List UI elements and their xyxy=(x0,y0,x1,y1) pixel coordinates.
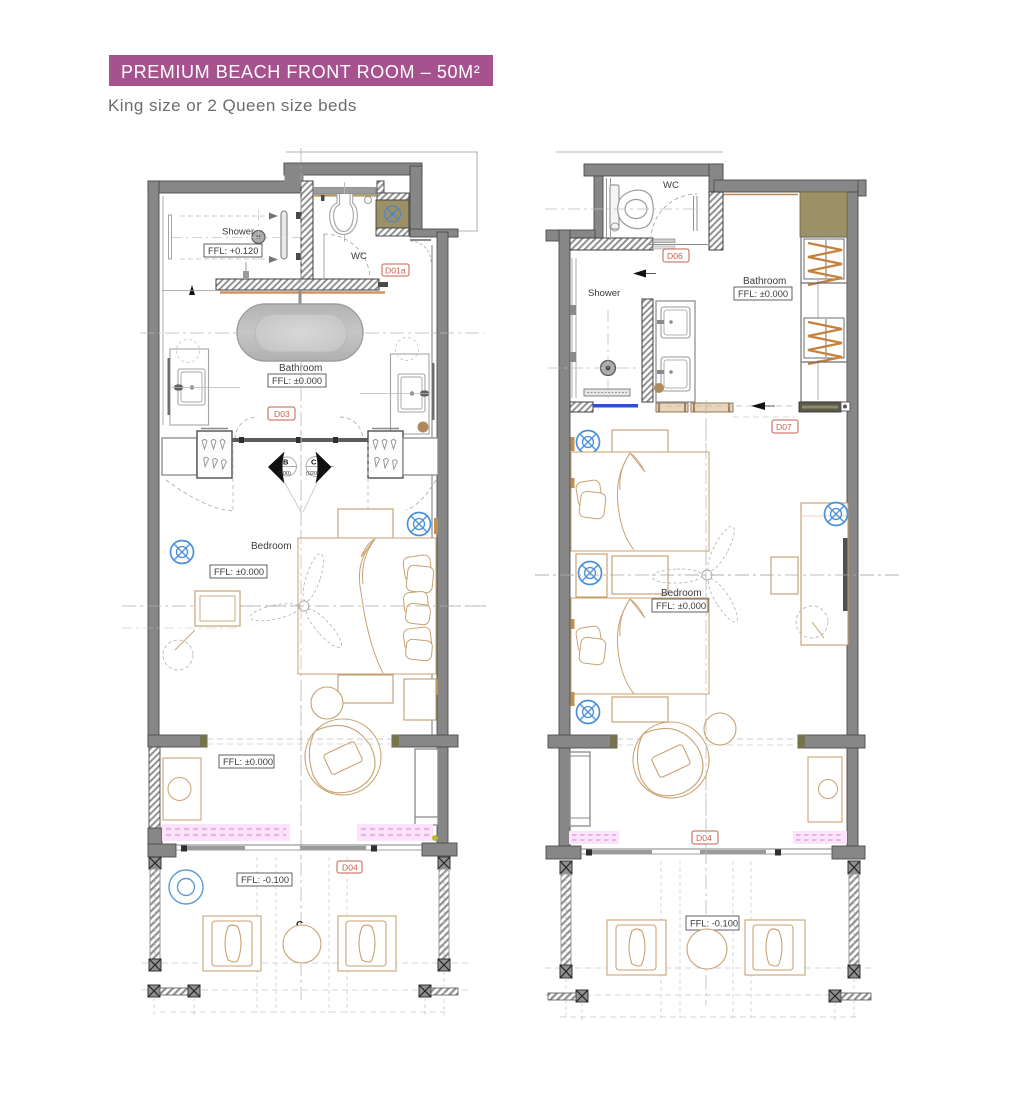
svg-text:Bedroom: Bedroom xyxy=(251,541,292,552)
svg-text:(200): (200) xyxy=(278,471,291,477)
svg-text:WC: WC xyxy=(351,251,367,262)
svg-text:D04: D04 xyxy=(342,863,358,873)
svg-text:Bedroom: Bedroom xyxy=(661,588,702,599)
svg-text:FFL: -0.100: FFL: -0.100 xyxy=(690,919,738,929)
svg-text:FFL: ±0.000: FFL: ±0.000 xyxy=(223,757,273,767)
svg-text:FFL: ±0.000: FFL: ±0.000 xyxy=(738,289,788,299)
svg-text:Bathroom: Bathroom xyxy=(743,276,786,287)
svg-text:D04: D04 xyxy=(696,833,712,843)
svg-text:D01a: D01a xyxy=(385,266,406,276)
svg-text:D03: D03 xyxy=(274,409,290,419)
svg-text:FFL: -0.100: FFL: -0.100 xyxy=(241,875,289,885)
svg-text:FFL: ±0.000: FFL: ±0.000 xyxy=(214,567,264,577)
svg-text:FFL: +0.120: FFL: +0.120 xyxy=(208,246,258,256)
svg-text:D07: D07 xyxy=(776,422,792,432)
svg-text:Shower: Shower xyxy=(588,288,620,299)
svg-text:WC: WC xyxy=(663,180,679,191)
svg-text:B: B xyxy=(283,458,289,467)
svg-text:(020): (020) xyxy=(306,471,319,477)
svg-text:C: C xyxy=(311,458,317,467)
svg-text:FFL: ±0.000: FFL: ±0.000 xyxy=(272,376,322,386)
svg-text:Shower: Shower xyxy=(222,227,254,238)
svg-text:D06: D06 xyxy=(667,251,683,261)
svg-text:FFL: ±0.000: FFL: ±0.000 xyxy=(656,601,706,611)
